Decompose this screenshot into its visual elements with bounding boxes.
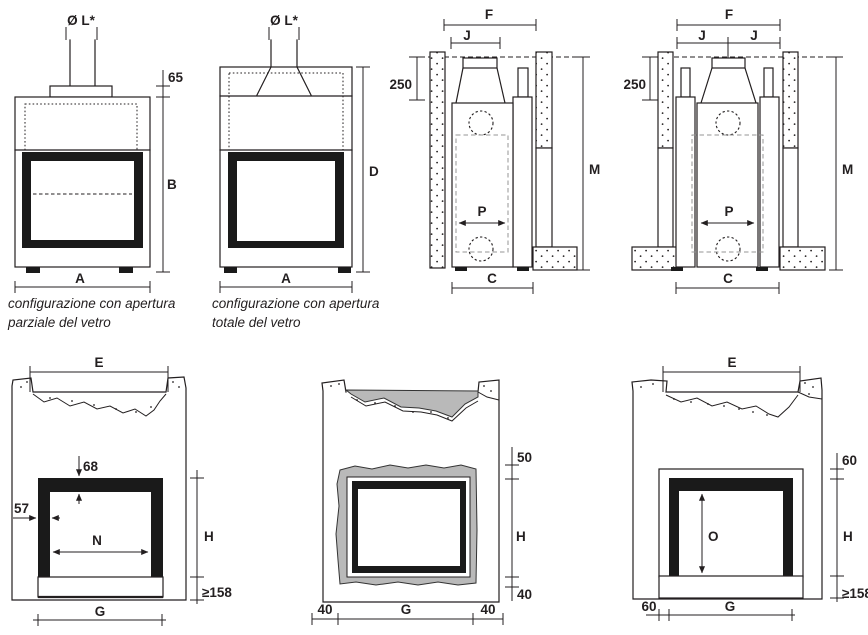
dim-right-lines <box>505 447 519 601</box>
dim-total-height-lines <box>576 57 590 270</box>
rear-shaft <box>513 97 532 267</box>
foot-right <box>517 267 529 271</box>
diagram-front-partial-opening: Ø L* 65 B A configurazione con apertura … <box>7 13 184 330</box>
hearth-min-height-label: ≥158 <box>842 586 868 601</box>
diagram-install-finished-frame: E N 68 57 H ≥158 G <box>12 355 232 626</box>
hood-funnel <box>701 68 756 103</box>
diagram-svg: Ø L* 65 B A configurazione con apertura … <box>0 0 868 635</box>
base-width-label: G <box>725 599 736 614</box>
body-height-label: B <box>167 177 177 192</box>
opening-height-label: H <box>204 529 214 544</box>
dim-height-lines <box>156 70 170 272</box>
flue-collar <box>50 86 112 97</box>
flue-diameter-label: Ø L* <box>67 13 95 28</box>
base-block-left <box>632 247 677 270</box>
dim-base-width-lines <box>646 609 795 621</box>
wall-right-upper <box>536 52 552 148</box>
counterhood-section-gray <box>346 390 478 417</box>
collar-height-label: 65 <box>168 70 184 85</box>
top-clearance-label: 250 <box>389 77 412 92</box>
glass-height-label: O <box>708 529 719 544</box>
niche-width-label: F <box>725 7 733 22</box>
foot-right <box>119 267 133 273</box>
bottom-gap-label: 40 <box>517 587 532 602</box>
glass-pane <box>31 161 134 240</box>
body-height-label: D <box>369 164 379 179</box>
flue-offset-right-label: J <box>750 28 758 43</box>
side-column-right <box>760 97 779 267</box>
finish-frame <box>38 478 163 577</box>
total-height-label: M <box>842 162 853 177</box>
foot-left <box>671 267 683 271</box>
body-width-label: A <box>281 271 291 286</box>
caption-partial-line2: parziale del vetro <box>7 315 111 330</box>
wall-right-upper <box>783 52 798 148</box>
glass-pane <box>358 489 460 566</box>
flue-collar <box>712 58 745 68</box>
wall-left-upper <box>658 52 673 148</box>
flue-diameter-label: Ø L* <box>270 13 298 28</box>
rear-air-pipe <box>518 68 528 97</box>
technical-dimension-sheet: Ø L* 65 B A configurazione con apertura … <box>0 0 868 635</box>
opening-width-label: N <box>92 533 102 548</box>
opening-height-label: H <box>516 529 526 544</box>
top-gap-label: 60 <box>842 453 857 468</box>
frame-top-overlap-label: 68 <box>83 459 99 474</box>
glass-pane <box>237 161 335 241</box>
opening-height-label: H <box>843 529 853 544</box>
flue-offset-left-label: J <box>698 28 706 43</box>
torn-plaster-edge <box>666 395 798 417</box>
dim-opening-height-lines <box>190 470 204 604</box>
base-block-right <box>533 247 577 270</box>
foot-right <box>338 267 351 273</box>
total-height-label: M <box>589 162 600 177</box>
caption-total-line1: configurazione con apertura <box>212 296 380 311</box>
flue-pipe <box>70 40 95 86</box>
left-margin-label: 40 <box>317 602 332 617</box>
wall-right-torn-edge <box>478 392 499 400</box>
dim-height-lines <box>356 67 370 272</box>
top-clearance-label: 250 <box>623 77 646 92</box>
wall-left-lower <box>658 148 673 247</box>
niche-width-label: E <box>94 355 103 370</box>
hearth-min-height-label: ≥158 <box>202 585 232 600</box>
dim-right-lines <box>830 453 844 602</box>
niche-width-label: E <box>727 355 736 370</box>
caption-total-line2: totale del vetro <box>212 315 301 330</box>
foot-left <box>224 267 237 273</box>
diagram-install-counterhood: 50 H 40 40 G 40 <box>312 380 532 625</box>
wall-right-torn-edge <box>798 392 822 399</box>
wall-left <box>430 52 445 268</box>
hearth-band <box>659 576 803 598</box>
flue-pipe <box>271 40 297 67</box>
base-block-right <box>780 247 825 270</box>
side-column-left <box>676 97 695 267</box>
diagram-front-total-opening: Ø L* D A configurazione con apertura tot… <box>212 13 380 330</box>
hood-funnel <box>456 68 505 103</box>
top-gap-label: 50 <box>517 450 532 465</box>
wall-right-lower <box>783 148 798 247</box>
base-width-label: G <box>401 602 412 617</box>
diagram-section-single-face: 250 P M C F J <box>389 7 600 294</box>
base-depth-label: C <box>487 271 497 286</box>
dim-flue-offset-lines <box>451 37 500 49</box>
insert-body <box>452 103 513 267</box>
torn-plaster-edge <box>33 394 166 416</box>
base-depth-label: C <box>723 271 733 286</box>
flue-diameter-ticks <box>269 27 299 40</box>
foot-right <box>756 267 768 271</box>
depth-label: P <box>477 204 486 219</box>
diagram-section-double-face: 250 P M C F J J <box>623 7 853 294</box>
diagram-install-glass-height: E O 60 H ≥158 60 G <box>632 355 868 621</box>
wall-right-lower <box>536 148 552 247</box>
hearth-band <box>38 577 163 597</box>
flue-collar <box>463 58 497 68</box>
base-width-label: G <box>95 604 106 619</box>
flue-offset-label: J <box>463 28 471 43</box>
caption-partial-line1: configurazione con apertura <box>8 296 176 311</box>
dim-flue-offset-lines <box>677 37 780 49</box>
air-pipe-left <box>681 68 690 97</box>
frame-side-overlap-label: 57 <box>14 501 29 516</box>
right-margin-label: 40 <box>480 602 495 617</box>
foot-left <box>455 267 467 271</box>
foot-left <box>26 267 40 273</box>
air-pipe-right <box>764 68 773 97</box>
dim-total-height-lines <box>829 57 843 270</box>
body-width-label: A <box>75 271 85 286</box>
niche-width-label: F <box>485 7 493 22</box>
left-margin-label: 60 <box>641 599 656 614</box>
depth-label: P <box>724 204 733 219</box>
flue-diameter-ticks <box>66 27 97 40</box>
insert-body <box>697 103 758 267</box>
